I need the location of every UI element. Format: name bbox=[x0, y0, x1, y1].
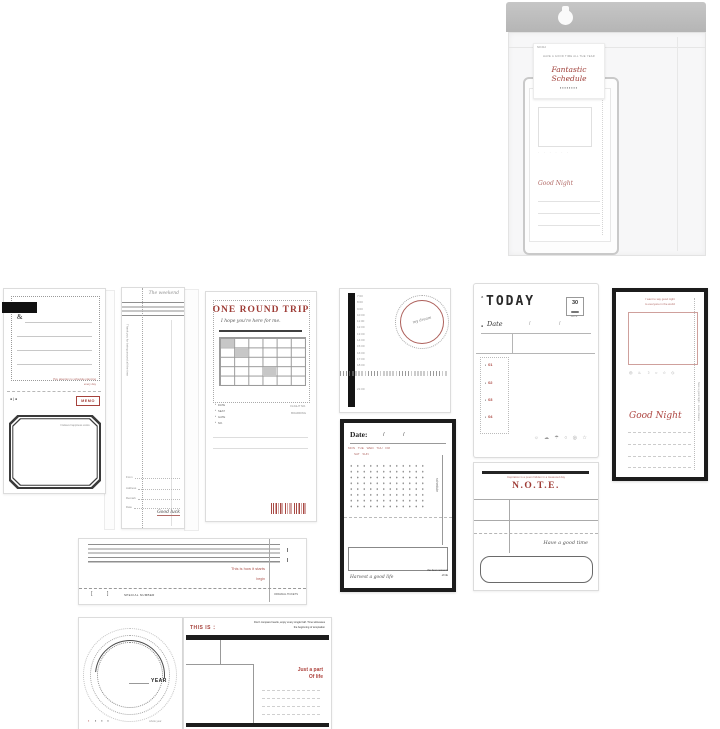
package-arc-text: HAVE A GOOD TIME ALL THE YEAR bbox=[536, 56, 602, 59]
bookmark-field-line bbox=[138, 485, 180, 490]
thisis-note-1: Don't compare hearts, enjoy every single… bbox=[239, 622, 325, 625]
octagon-face: I believe happiness exists bbox=[13, 419, 96, 484]
bag-body: sweet dreams tonight · · · · · · Good Ni… bbox=[508, 32, 706, 256]
roundtrip-bullet-label: DATE bbox=[218, 404, 225, 407]
notecard-topline bbox=[482, 471, 589, 474]
goodnight-dashed-line bbox=[628, 456, 691, 457]
roundtrip-title: ONE ROUND TRIP bbox=[206, 305, 316, 316]
today-slash-2: / bbox=[559, 322, 560, 328]
datecard-note-2: of life bbox=[400, 575, 448, 578]
roundtrip-line bbox=[213, 437, 308, 438]
timeline-bar bbox=[348, 293, 355, 407]
bookmark-dotted-line bbox=[142, 288, 143, 528]
today-underline bbox=[481, 333, 591, 334]
today-title: TODAY bbox=[486, 295, 535, 310]
memo-red-note-2: every day bbox=[14, 383, 96, 386]
ticket-divider bbox=[269, 539, 270, 602]
stamp-value: 30 bbox=[567, 300, 583, 306]
datecard-slash-1: / bbox=[383, 432, 385, 438]
year-corner-note: whole year bbox=[149, 721, 162, 724]
thisis-dotted-line bbox=[262, 690, 320, 691]
memo-divider bbox=[7, 391, 101, 392]
bag-hang-header bbox=[506, 2, 706, 32]
package-title: Fantastic Schedule bbox=[534, 66, 604, 83]
ticket-stub-tick bbox=[287, 548, 288, 552]
task-number: 01 bbox=[488, 363, 492, 368]
task-row: ▪ 02 bbox=[485, 381, 493, 386]
bookmark-field-row: From bbox=[126, 474, 180, 479]
roundtrip-bullet-row: ▪DATE bbox=[215, 404, 225, 407]
datecard-box bbox=[348, 547, 448, 571]
year-dots-red: ▪ bbox=[88, 719, 91, 723]
thisis-bar-top bbox=[186, 635, 329, 640]
thisis-dotted-line bbox=[262, 706, 320, 707]
today-sheet: a TODAY 30 DATE ● Date / / ▪ 01 ▪ 02 ▪ 0… bbox=[473, 283, 599, 458]
today-date-label: Date bbox=[487, 321, 503, 328]
roundtrip-right-label: BOARDING bbox=[251, 412, 306, 415]
pad-dots: · · · · · · bbox=[538, 151, 570, 154]
today-prefix: a bbox=[481, 295, 483, 300]
goodnight-photo-frame bbox=[628, 312, 698, 365]
memo-line bbox=[17, 364, 92, 365]
octagon-inner-line: I believe happiness exists bbox=[12, 418, 97, 485]
goodnight-sheet: I want to say good night to everyone in … bbox=[612, 288, 708, 481]
goodnight-dotted-divider bbox=[694, 298, 695, 470]
year-title: YEAR bbox=[151, 679, 167, 685]
pad-script: Good Night bbox=[538, 181, 573, 188]
roundtrip-sheet: ONE ROUND TRIP I hope you're here for me… bbox=[205, 291, 317, 522]
memo-line bbox=[17, 350, 92, 351]
stamp-bar bbox=[571, 311, 579, 314]
bookmark-field-line bbox=[134, 504, 180, 509]
bookmark-sheet: The weekend Thank you for being around a… bbox=[121, 287, 185, 529]
ticket-sheet: This is how it starts begin [ ] SPECIAL … bbox=[78, 538, 307, 605]
stamp-label: DATE bbox=[566, 316, 582, 319]
today-hline bbox=[476, 353, 595, 354]
datecard-label: Date: bbox=[350, 431, 368, 440]
thisis-vline-1 bbox=[220, 640, 221, 664]
goodnight-dashed-line bbox=[628, 444, 691, 445]
bookmark-stripes bbox=[122, 302, 184, 319]
goodnight-dashed-line bbox=[628, 467, 691, 468]
thisis-vline-2 bbox=[253, 664, 254, 723]
pad-photo-box bbox=[538, 107, 592, 147]
memo-sheet: & Pay attention to schedule planning eve… bbox=[3, 288, 106, 494]
year-dots: ▪ ▪ ▪ bbox=[95, 719, 111, 723]
bookmark-script-title: The weekend bbox=[129, 291, 179, 296]
goodnight-note-2: to everyone in the world bbox=[616, 303, 704, 306]
notecard-note: Inspiration is a poem hidden in a treasu… bbox=[474, 476, 598, 479]
today-vline bbox=[512, 333, 513, 353]
datecard-script: Harvest a good life bbox=[350, 575, 393, 580]
datecard-vline bbox=[442, 455, 443, 545]
bookmark-field-label: From bbox=[126, 476, 133, 479]
goodnight-side-text: have a good night · sweet dreams bbox=[696, 382, 699, 467]
task-row: ▪ 04 bbox=[485, 415, 493, 420]
grid-shade bbox=[235, 348, 248, 357]
today-slash-1: / bbox=[529, 322, 530, 328]
roundtrip-line bbox=[213, 448, 308, 449]
today-task-panel: ▪ 01 ▪ 02 ▪ 03 ▪ 04 bbox=[480, 357, 509, 434]
grid-shade bbox=[221, 339, 234, 347]
thisis-dotted-line bbox=[262, 698, 320, 699]
task-number: 04 bbox=[488, 415, 492, 420]
datecard-note-1: the best moments bbox=[400, 570, 448, 573]
octagon-note: I believe happiness exists bbox=[30, 425, 90, 428]
package-label-card: NO.012 HAVE A GOOD TIME ALL THE YEAR Fan… bbox=[533, 43, 605, 99]
yearcard-sheet: YEAR ▪ ▪ ▪ ▪ whole year bbox=[78, 617, 183, 729]
pad-frame: sweet dreams tonight · · · · · · Good Ni… bbox=[523, 77, 619, 255]
goodnight-note-1: I want to say good night bbox=[616, 298, 704, 301]
ticket-perforation bbox=[79, 588, 306, 589]
ticket-left-label: SPECIAL NUMBER bbox=[124, 594, 155, 597]
today-stamp: 30 bbox=[566, 297, 584, 316]
bookmark-field-line bbox=[138, 495, 180, 500]
bookmark-field-row: Address bbox=[126, 485, 180, 490]
ticket-red-1: This is how it starts bbox=[139, 567, 265, 572]
year-line bbox=[129, 683, 149, 684]
pad-line bbox=[538, 213, 600, 214]
ticket-stub-label: ORIGINAL TICKETS bbox=[274, 594, 304, 597]
goodnight-mood-icons: ◎ ♨ ☽ ○ ☆ ◇ bbox=[629, 371, 676, 376]
year-arc bbox=[81, 626, 180, 725]
notecard-line bbox=[474, 499, 598, 500]
roundtrip-grid bbox=[219, 337, 306, 386]
roundtrip-bullet-row: ▪GATE bbox=[215, 416, 225, 419]
datecard-dashed bbox=[344, 517, 452, 518]
task-bullet: ▪ bbox=[485, 399, 486, 402]
ticket-stripes bbox=[88, 544, 280, 564]
timeline-hatch-band bbox=[340, 371, 448, 376]
memo-marks: ● | ● bbox=[10, 397, 17, 401]
roundtrip-bullet-label: SEAT bbox=[218, 410, 225, 413]
datecard-slash-2: / bbox=[403, 432, 405, 438]
memo-black-label bbox=[2, 302, 37, 313]
datecard-week-1: MON TUE WED THU FRI bbox=[348, 447, 390, 450]
memo-ampersand: & bbox=[17, 313, 22, 321]
barcode-icon bbox=[271, 503, 308, 514]
today-date-bullet: ● bbox=[481, 324, 483, 328]
task-bullet: ▪ bbox=[485, 382, 486, 385]
ticket-stub-tick bbox=[287, 558, 288, 562]
bookmark-signature: Good luck bbox=[157, 510, 180, 516]
goodnight-dashed-line bbox=[628, 432, 691, 433]
ticket-bracket-open: [ bbox=[91, 592, 92, 598]
datecard-week-2: SAT SUN bbox=[354, 453, 369, 456]
bag-side-seam bbox=[677, 37, 678, 251]
notecard-dashed bbox=[474, 533, 598, 534]
roundtrip-bullet-label: GATE bbox=[218, 416, 225, 419]
datecard-underline bbox=[350, 443, 446, 444]
task-row: ▪ 01 bbox=[485, 363, 493, 368]
notecard-roundbox bbox=[480, 556, 593, 583]
roundtrip-right-label: FLIGHT NO. bbox=[251, 405, 306, 408]
thisis-bar-bottom bbox=[186, 723, 329, 727]
thisis-hline bbox=[186, 664, 254, 665]
datecard-sheet: Date: / / MON TUE WED THU FRI SAT SUN sc… bbox=[340, 419, 456, 592]
thisis-sheet: THIS IS ： Don't compare hearts, enjoy ev… bbox=[183, 617, 332, 729]
task-bullet: ▪ bbox=[485, 416, 486, 419]
pad-line bbox=[538, 201, 600, 202]
thisis-dotted-line bbox=[262, 714, 320, 715]
timeline-circle-text: my dream bbox=[401, 313, 443, 328]
ticket-bracket-close: ] bbox=[107, 592, 108, 598]
ticket-red-2: begin bbox=[139, 577, 265, 581]
memo-line bbox=[25, 322, 92, 323]
thisis-note-2: the beginning of temptation bbox=[239, 627, 325, 630]
notecard-title: N.O.T.E. bbox=[474, 481, 598, 492]
goodnight-title: Good Night bbox=[629, 411, 682, 421]
octagon-gap: I believe happiness exists bbox=[11, 417, 99, 487]
today-weather-icons: ☼ ☁ ☂ ○ ◎ ☆ bbox=[534, 436, 589, 442]
timeline-late-time: 21:00 bbox=[357, 388, 365, 391]
ghost-sheet bbox=[184, 289, 199, 531]
timeline-times: 7:00 8:00 9:00 10:00 11:00 12:00 13:00 1… bbox=[357, 293, 365, 369]
product-photo: sweet dreams tonight · · · · · · Good Ni… bbox=[0, 0, 720, 729]
notecard-script: Have a good time bbox=[514, 541, 588, 547]
schedule-pad: sweet dreams tonight · · · · · · Good Ni… bbox=[529, 88, 611, 242]
bookmark-field-row: Date bbox=[126, 504, 180, 509]
datecard-dotgrid bbox=[348, 463, 428, 508]
notecard-vline bbox=[509, 499, 510, 553]
thisis-highlight-1: Just a part bbox=[259, 668, 323, 674]
memo-chip: MEMO bbox=[76, 396, 100, 406]
roundtrip-bullet-row: ▪NO. bbox=[215, 422, 223, 425]
roundtrip-subtitle: I hope you're here for me. bbox=[221, 319, 281, 324]
task-number: 03 bbox=[488, 398, 492, 403]
roundtrip-bullet-label: NO. bbox=[218, 422, 223, 425]
bookmark-field-row: Remark bbox=[126, 495, 180, 500]
bookmark-field-label: Date bbox=[126, 506, 132, 509]
roundtrip-bullet-row: ▪SEAT bbox=[215, 410, 225, 413]
notecard-sheet: Inspiration is a poem hidden in a treasu… bbox=[473, 462, 599, 591]
task-row: ▪ 03 bbox=[485, 398, 493, 403]
pad-line bbox=[538, 225, 600, 226]
thisis-title: THIS IS ： bbox=[190, 626, 218, 632]
package: sweet dreams tonight · · · · · · Good Ni… bbox=[506, 2, 706, 256]
grid-shade bbox=[263, 367, 276, 376]
timeline-sheet: 7:00 8:00 9:00 10:00 11:00 12:00 13:00 1… bbox=[339, 288, 451, 413]
memo-line bbox=[17, 336, 92, 337]
thisis-highlight-2: Of life bbox=[259, 675, 323, 681]
task-bullet: ▪ bbox=[485, 364, 486, 367]
task-number: 02 bbox=[488, 381, 492, 386]
roundtrip-rule bbox=[219, 330, 302, 332]
package-marks: ▪▪▪▪▪▪▪▪ bbox=[534, 86, 604, 90]
timeline-red-circle: my dream bbox=[400, 300, 444, 344]
pad-divider bbox=[602, 95, 603, 235]
notecard-line bbox=[474, 520, 598, 521]
bookmark-field-line bbox=[135, 474, 180, 479]
bookmark-field-label: Remark bbox=[126, 497, 136, 500]
package-code: NO.012 bbox=[537, 47, 546, 50]
memo-octagon-frame: I believe happiness exists bbox=[9, 415, 101, 489]
memo-red-note-1: Pay attention to schedule planning bbox=[14, 378, 96, 381]
bookmark-field-label: Address bbox=[126, 487, 136, 490]
bookmark-vertical-text: Thank you for being around all the time bbox=[125, 324, 128, 409]
hang-hole-icon bbox=[558, 10, 573, 25]
